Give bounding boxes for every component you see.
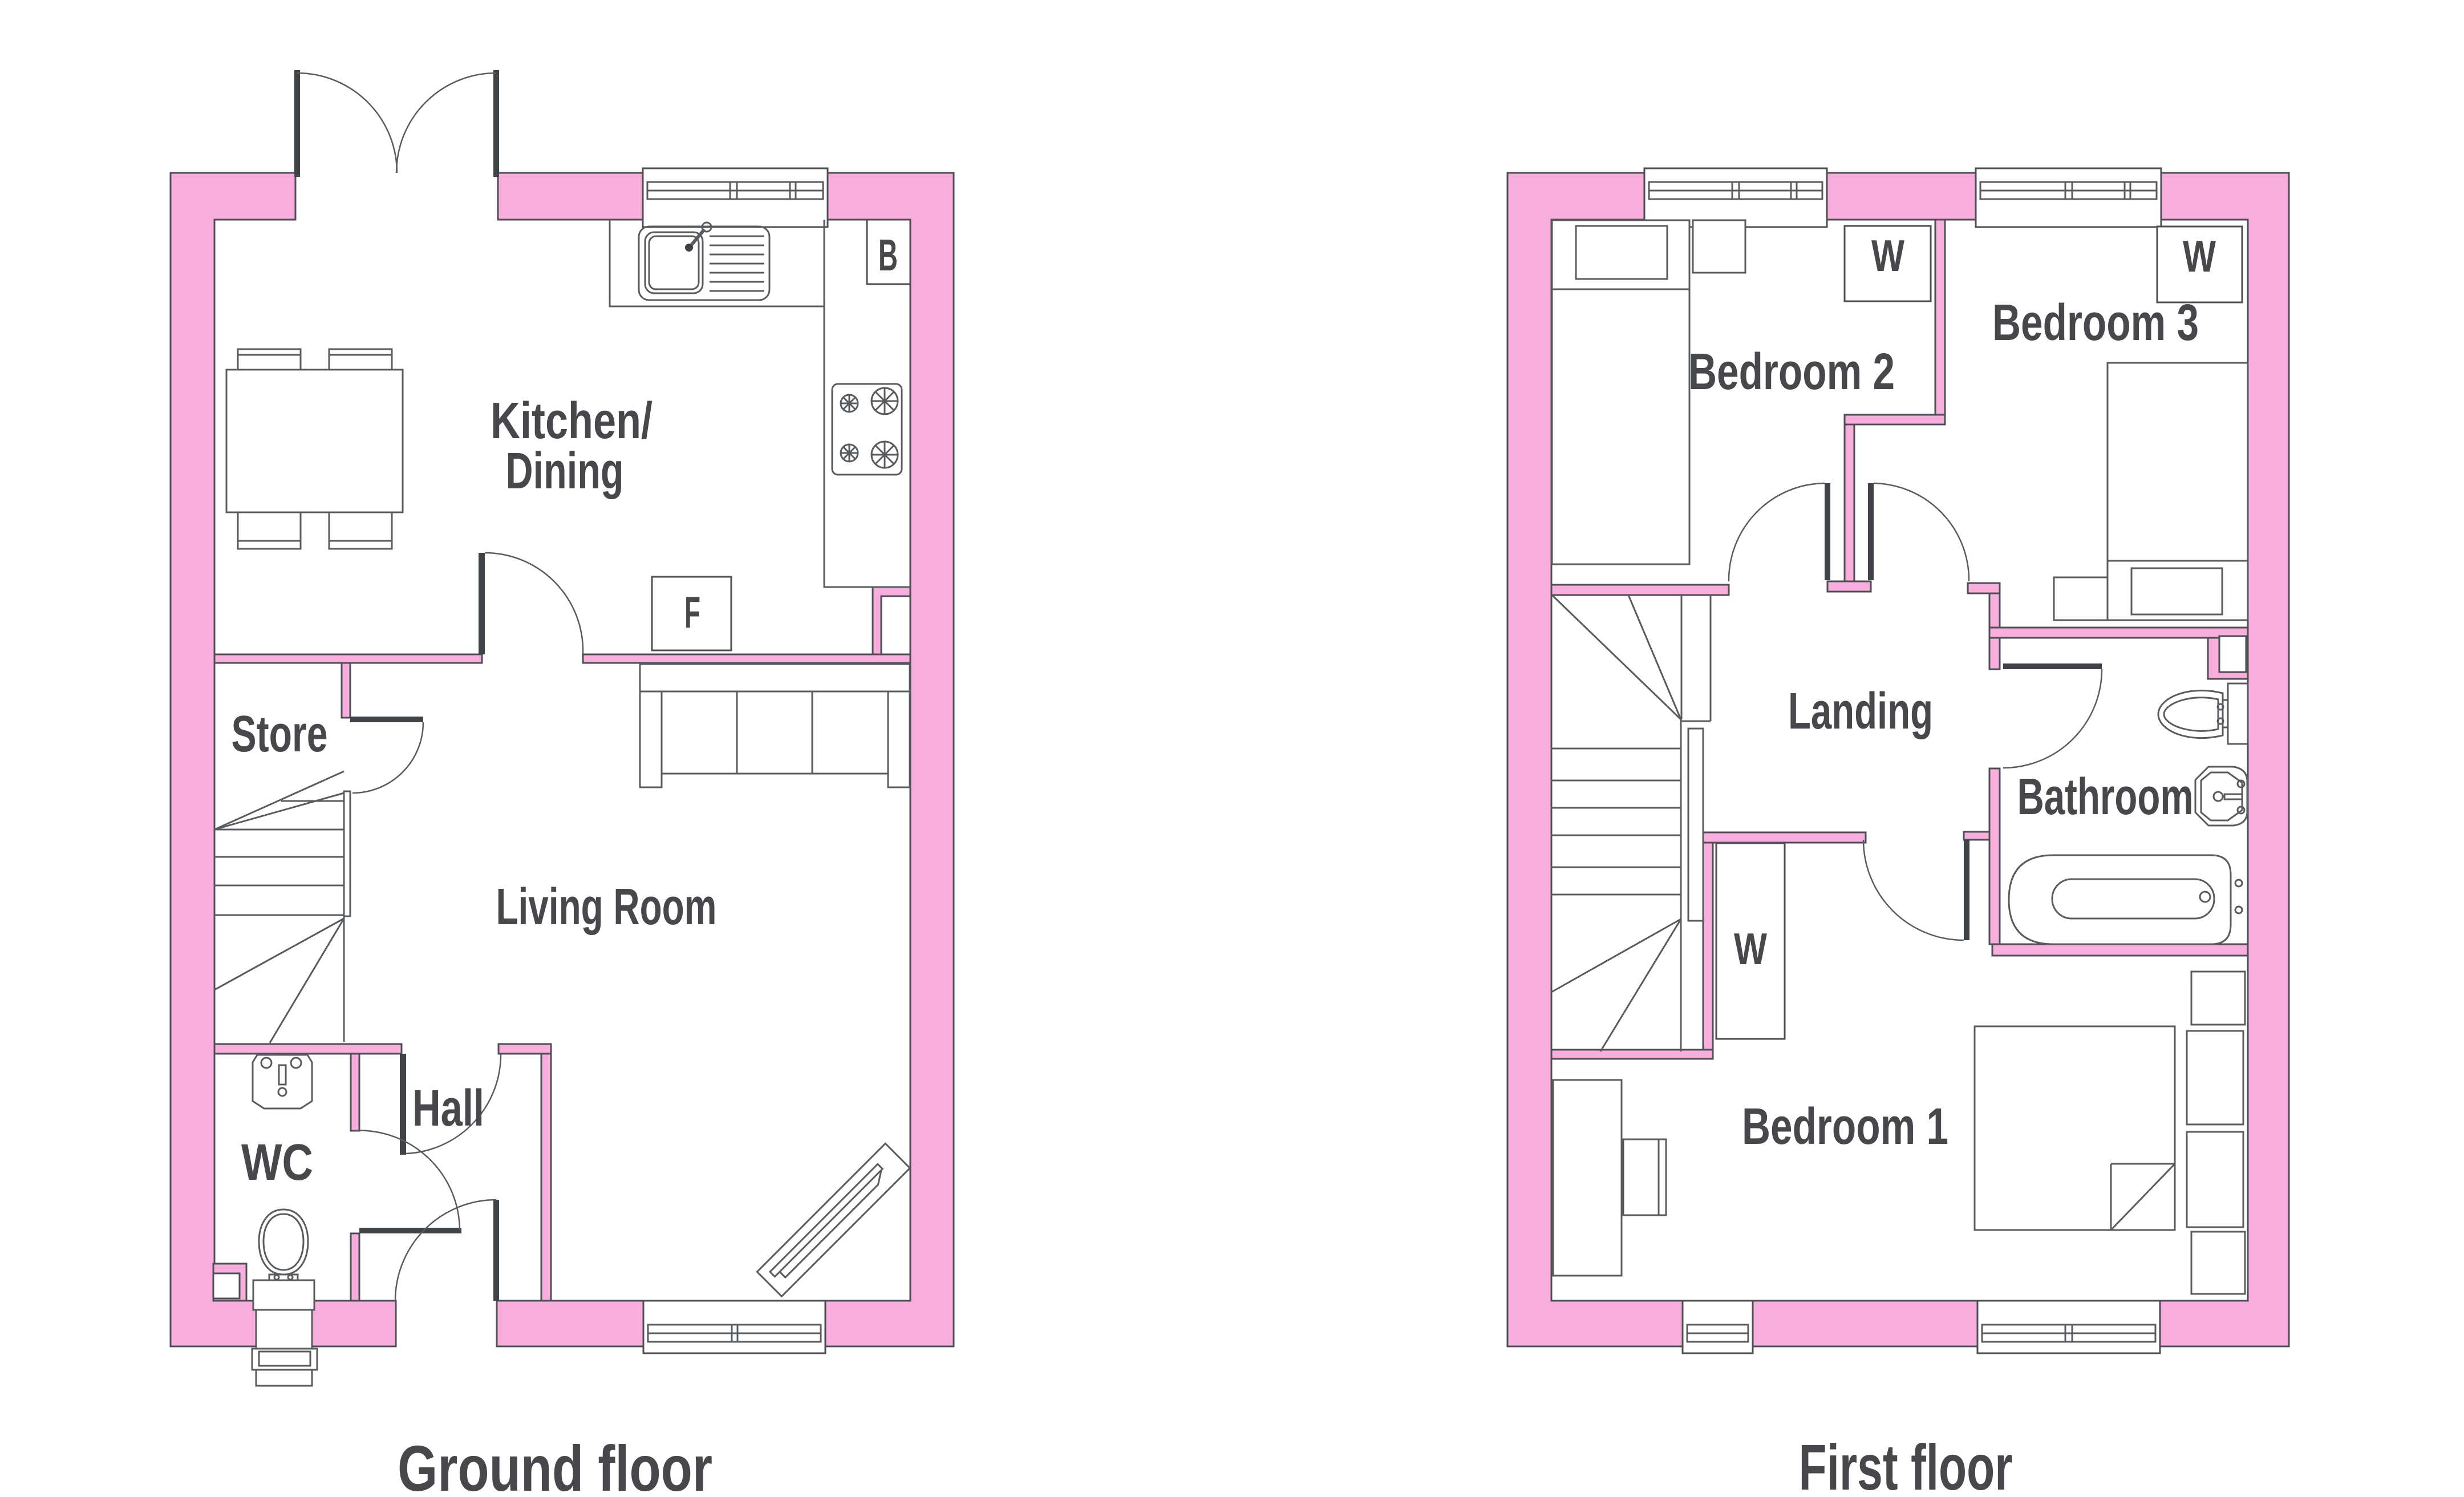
svg-text:W: W: [1734, 924, 1767, 974]
svg-text:F: F: [684, 587, 700, 637]
svg-text:Living Room: Living Room: [496, 879, 717, 936]
svg-text:First floor: First floor: [1799, 1431, 2013, 1497]
svg-text:W: W: [2183, 231, 2216, 281]
svg-text:Hall: Hall: [412, 1080, 484, 1137]
svg-text:W: W: [1871, 230, 1904, 281]
svg-text:B: B: [878, 230, 898, 280]
svg-text:Landing: Landing: [1788, 683, 1933, 740]
svg-text:Bedroom 1: Bedroom 1: [1742, 1098, 1948, 1155]
svg-text:Bathroom: Bathroom: [2017, 768, 2194, 826]
svg-text:Bedroom 3: Bedroom 3: [1992, 294, 2199, 351]
svg-text:Bedroom 2: Bedroom 2: [1688, 343, 1895, 400]
svg-text:Store: Store: [232, 706, 328, 763]
svg-text:Kitchen/: Kitchen/: [491, 393, 653, 450]
svg-text:Dining: Dining: [506, 443, 624, 500]
svg-text:WC: WC: [241, 1134, 313, 1191]
svg-text:Ground floor: Ground floor: [398, 1433, 712, 1497]
